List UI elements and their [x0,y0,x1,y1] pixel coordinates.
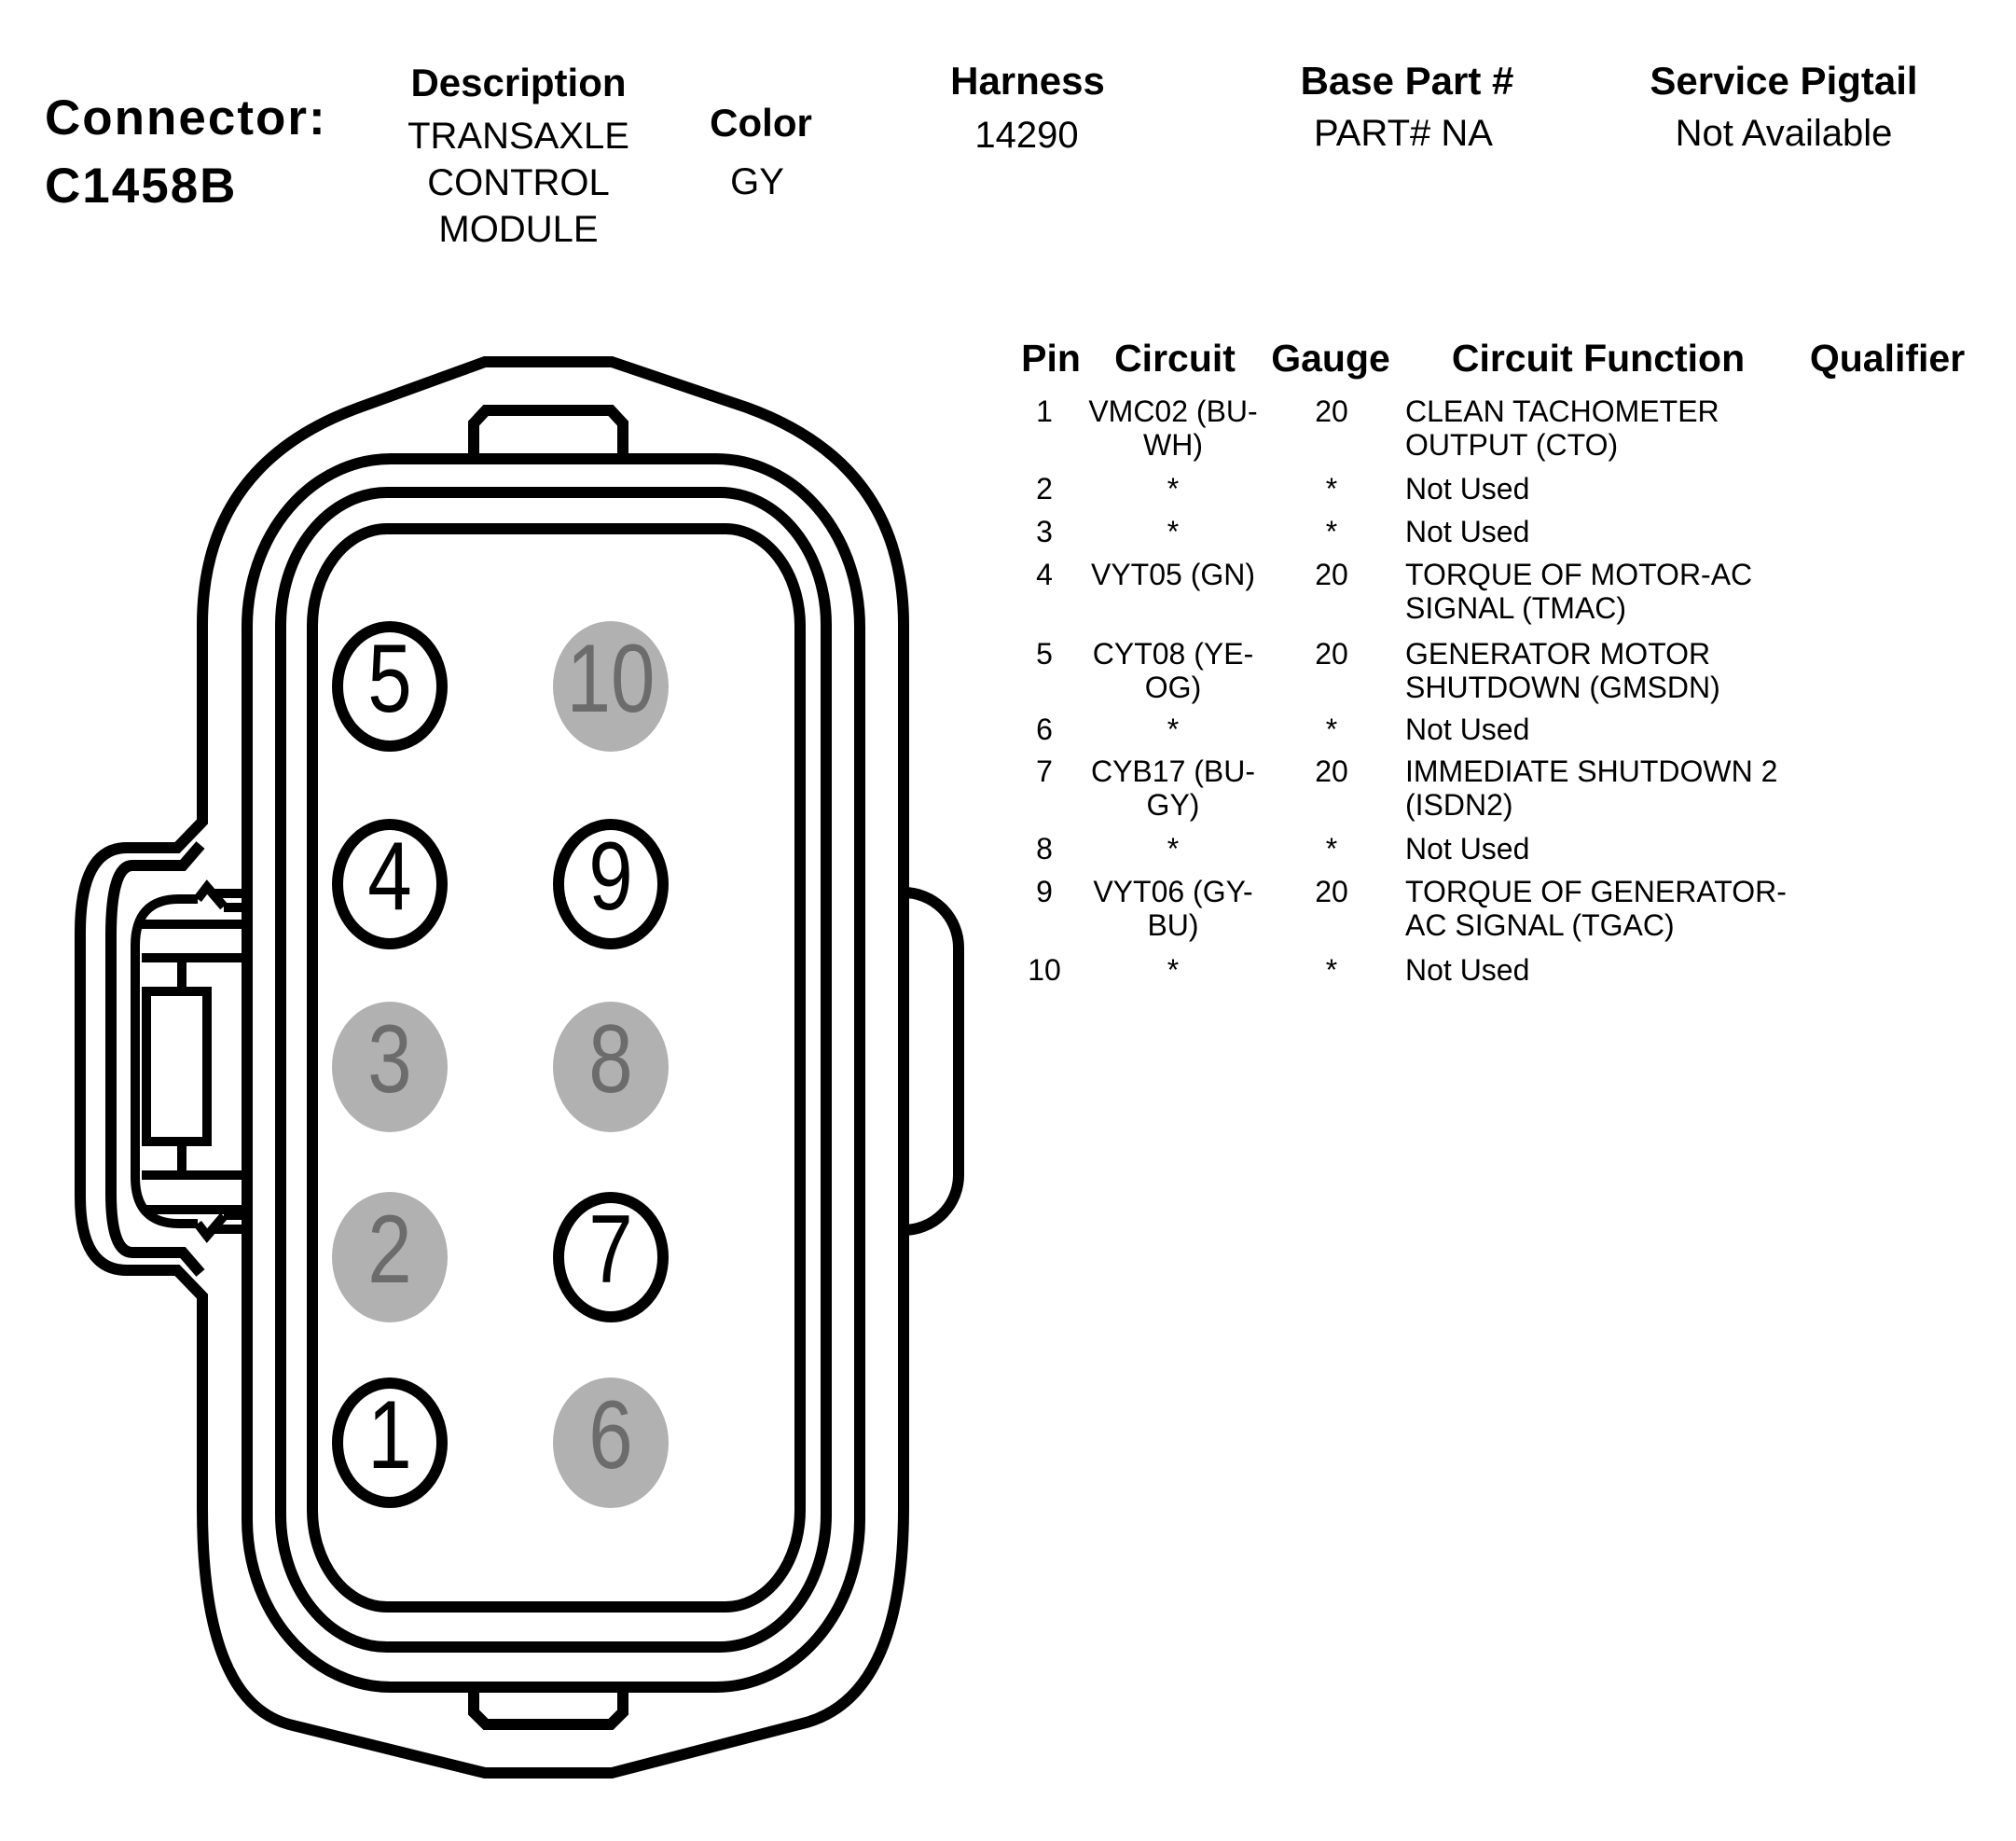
svg-text:10: 10 [567,625,656,733]
svg-text:2: 2 [367,1196,411,1304]
svg-text:3: 3 [367,1005,411,1114]
svg-text:7: 7 [588,1196,632,1304]
svg-text:1: 1 [367,1381,411,1489]
svg-text:8: 8 [588,1005,632,1114]
svg-text:9: 9 [588,823,632,931]
svg-text:4: 4 [367,823,411,931]
svg-text:5: 5 [367,625,411,733]
svg-text:6: 6 [588,1381,632,1489]
